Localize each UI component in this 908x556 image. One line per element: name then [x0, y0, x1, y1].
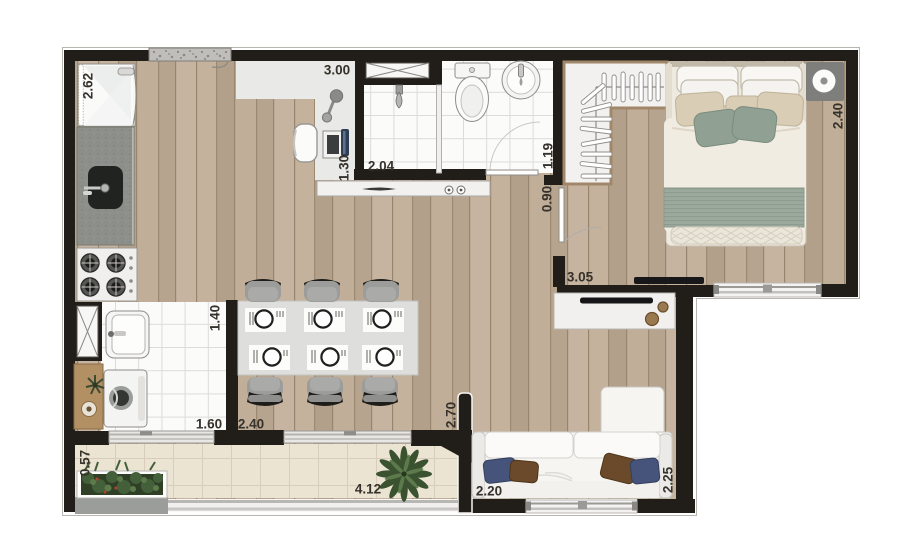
svg-text:3.05: 3.05 [567, 270, 594, 285]
svg-text:1.60: 1.60 [196, 417, 222, 432]
svg-text:1.30: 1.30 [337, 155, 352, 181]
svg-text:4.12: 4.12 [355, 482, 381, 497]
svg-text:1.40: 1.40 [208, 305, 223, 331]
svg-text:1.19: 1.19 [541, 143, 556, 169]
svg-text:2.20: 2.20 [476, 484, 502, 499]
svg-text:2.62: 2.62 [81, 73, 96, 99]
svg-text:2.25: 2.25 [661, 466, 676, 493]
svg-text:2.40: 2.40 [831, 103, 846, 129]
svg-text:0.57: 0.57 [78, 450, 93, 476]
svg-text:2.04: 2.04 [368, 159, 395, 174]
svg-text:2.40: 2.40 [238, 417, 264, 432]
svg-text:2.70: 2.70 [444, 402, 459, 428]
svg-text:0.90: 0.90 [540, 186, 555, 212]
svg-text:3.00: 3.00 [324, 63, 350, 78]
